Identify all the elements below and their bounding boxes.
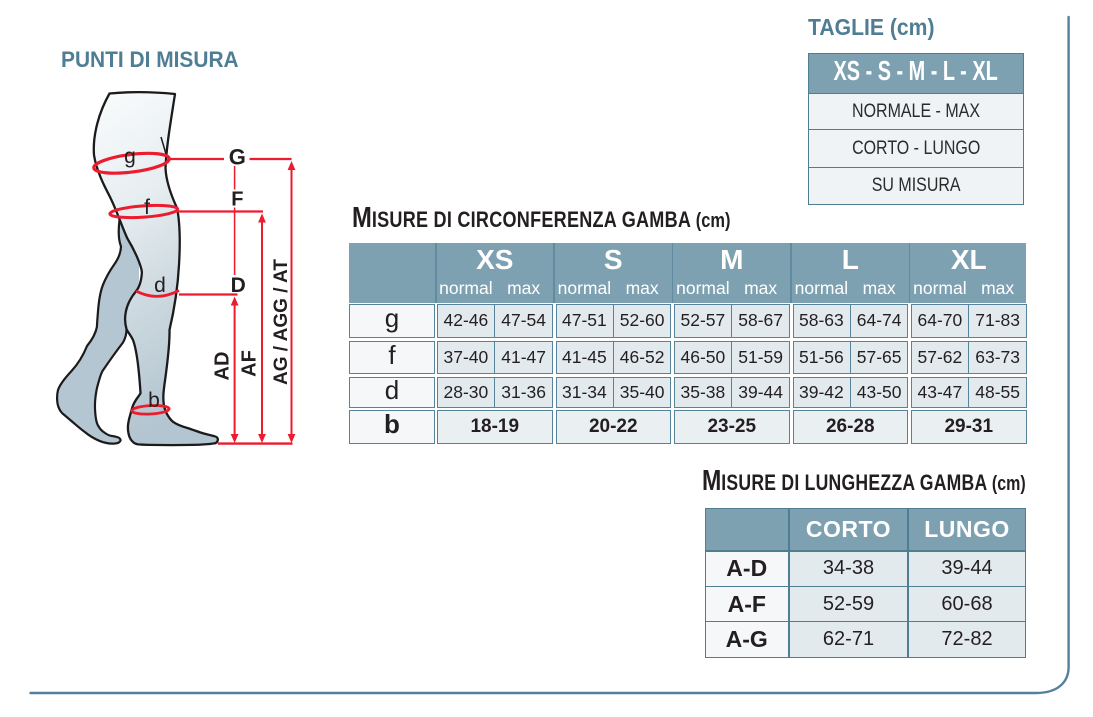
- svg-text:G: G: [229, 145, 246, 170]
- svg-text:b: b: [148, 389, 160, 412]
- svg-text:AD: AD: [212, 352, 234, 381]
- svg-text:F: F: [231, 189, 243, 211]
- svg-text:AG / AGG / AT: AG / AGG / AT: [271, 259, 292, 385]
- svg-text:D: D: [231, 274, 246, 297]
- svg-text:d: d: [154, 274, 166, 297]
- svg-text:g: g: [124, 145, 136, 168]
- svg-text:AF: AF: [239, 350, 261, 377]
- svg-text:f: f: [144, 196, 150, 219]
